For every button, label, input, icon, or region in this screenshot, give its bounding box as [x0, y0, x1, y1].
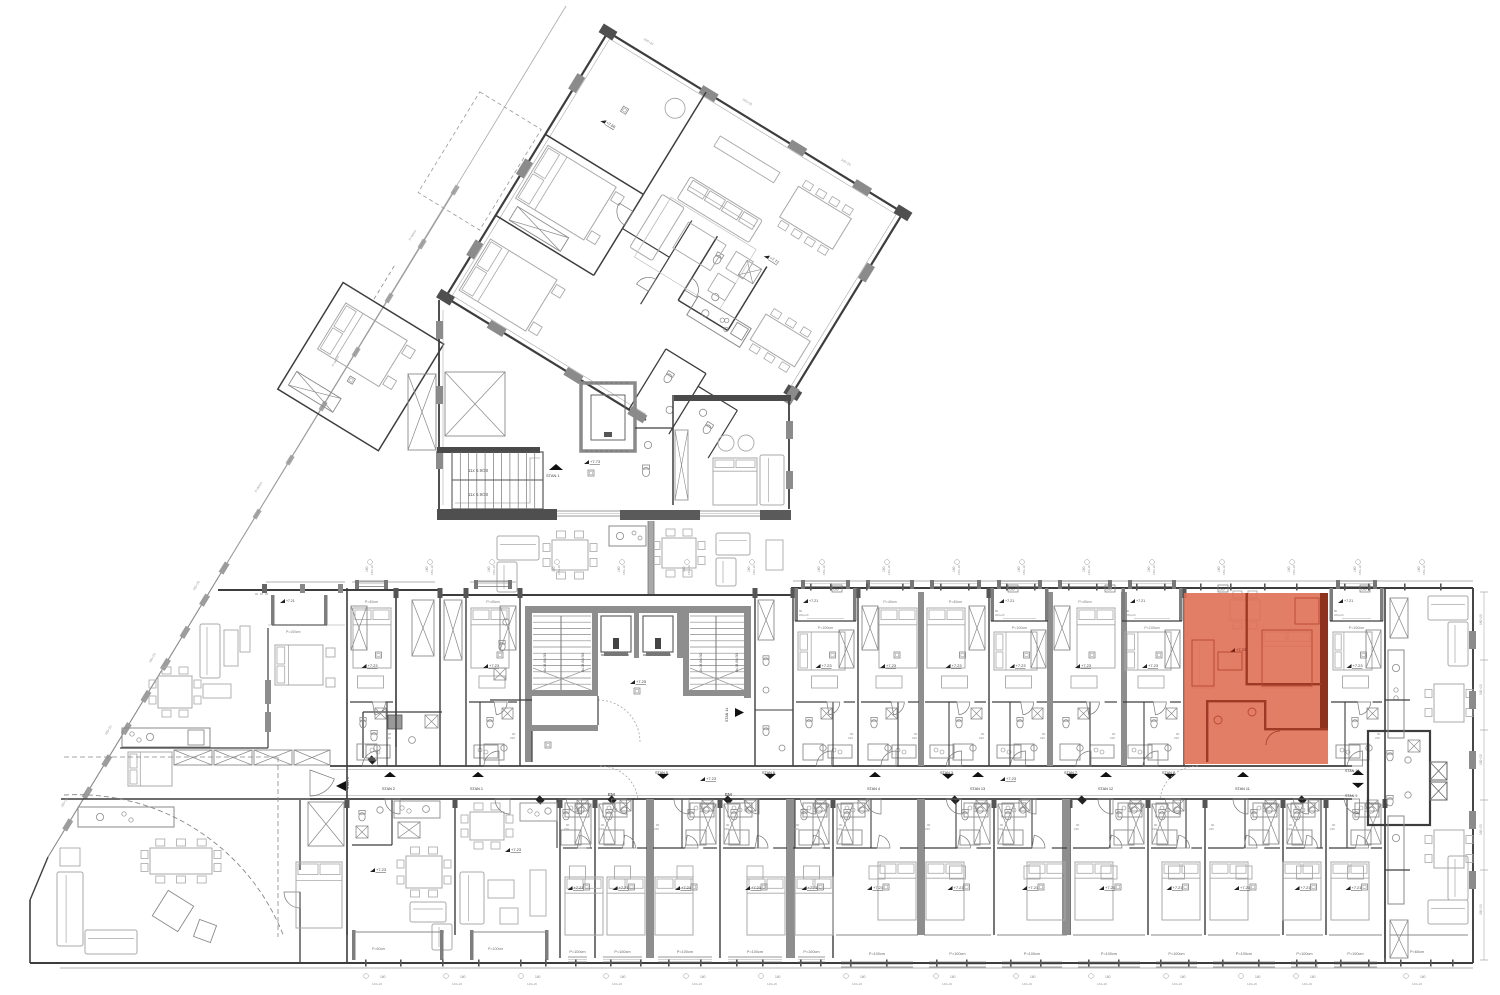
svg-text:+7.21: +7.21	[751, 885, 762, 890]
svg-text:+7.21: +7.21	[286, 599, 295, 603]
svg-text:+7.23: +7.23	[952, 663, 963, 668]
svg-text:140+20: 140+20	[527, 982, 537, 986]
svg-text:160: 160	[1147, 566, 1151, 572]
svg-text:+7.23: +7.23	[376, 867, 387, 872]
svg-text:+7.21: +7.21	[954, 885, 965, 890]
svg-text:DG: DG	[1010, 588, 1015, 592]
svg-text:180+20: 180+20	[557, 565, 561, 575]
svg-text:P=100cm: P=100cm	[1012, 626, 1027, 630]
svg-text:+7.23: +7.23	[886, 663, 897, 668]
svg-text:160: 160	[365, 566, 369, 572]
svg-text:9x18.66/30: 9x18.66/30	[581, 653, 585, 672]
svg-text:160: 160	[775, 975, 781, 979]
svg-text:EM: EM	[725, 792, 732, 797]
svg-text:220: 220	[1152, 827, 1157, 831]
svg-text:220: 220	[998, 827, 1003, 831]
svg-text:11x 5.9/30: 11x 5.9/30	[468, 468, 489, 473]
svg-text:220: 220	[912, 736, 917, 740]
svg-text:+7.23: +7.23	[1236, 647, 1247, 652]
svg-text:220: 220	[925, 827, 930, 831]
svg-text:140+20: 140+20	[692, 982, 702, 986]
svg-text:140+20: 140+20	[372, 982, 382, 986]
svg-text:220: 220	[510, 736, 515, 740]
svg-text:180+20: 180+20	[752, 565, 756, 575]
svg-text:140+20: 140+20	[1412, 982, 1422, 986]
svg-text:+7.21: +7.21	[619, 885, 630, 890]
svg-text:+7.21: +7.21	[1344, 599, 1353, 603]
svg-text:160: 160	[1217, 566, 1221, 572]
svg-text:P=100cm: P=100cm	[614, 950, 630, 954]
svg-text:140+20: 140+20	[1172, 982, 1182, 986]
svg-text:160: 160	[1310, 975, 1316, 979]
svg-text:180+20: 180+20	[1479, 754, 1483, 765]
svg-text:180+20: 180+20	[1222, 565, 1226, 575]
svg-text:160: 160	[860, 975, 866, 979]
svg-text:P=60cm: P=60cm	[372, 947, 385, 951]
svg-text:DG: DG	[834, 588, 839, 592]
svg-text:P=40cm: P=40cm	[486, 600, 499, 604]
svg-text:P=100cm: P=100cm	[1168, 952, 1184, 956]
svg-text:+7.21: +7.21	[809, 599, 818, 603]
svg-text:220: 220	[979, 736, 984, 740]
svg-text:220: 220	[564, 827, 569, 831]
svg-text:STAN 8: STAN 8	[1162, 771, 1175, 775]
svg-text:STAN 4: STAN 4	[867, 787, 880, 791]
svg-text:160: 160	[747, 566, 751, 572]
svg-text:220: 220	[1375, 736, 1380, 740]
svg-text:P=40cm: P=40cm	[1078, 600, 1091, 604]
svg-text:180+20: 180+20	[1152, 565, 1156, 575]
svg-text:P=100cm: P=100cm	[1101, 952, 1117, 956]
svg-text:140+20: 140+20	[942, 982, 952, 986]
svg-text:220+20: 220+20	[1126, 613, 1136, 617]
svg-text:+7.21: +7.21	[1005, 599, 1014, 603]
svg-text:140+20: 140+20	[1022, 982, 1032, 986]
svg-text:P=40cm: P=40cm	[949, 600, 962, 604]
svg-text:9x18.66/30: 9x18.66/30	[735, 653, 739, 672]
svg-text:P=100cm: P=100cm	[488, 947, 503, 951]
svg-text:+7.23: +7.23	[489, 663, 500, 668]
svg-text:220+20: 220+20	[995, 613, 1005, 617]
svg-text:+7.25: +7.25	[636, 679, 647, 684]
svg-text:DG: DG	[1362, 588, 1367, 592]
svg-text:220: 220	[1209, 827, 1214, 831]
svg-text:160: 160	[1287, 566, 1291, 572]
svg-text:180+20: 180+20	[1087, 565, 1091, 575]
svg-text:+7.21: +7.21	[808, 885, 819, 890]
svg-text:+7.23: +7.23	[1081, 663, 1092, 668]
svg-text:220: 220	[724, 827, 729, 831]
svg-text:180+20: 180+20	[1358, 565, 1362, 575]
svg-text:P=100cm: P=100cm	[569, 950, 585, 954]
svg-text:140+20: 140+20	[767, 982, 777, 986]
svg-text:+7.23: +7.23	[368, 663, 379, 668]
svg-text:P=60cm: P=60cm	[1410, 950, 1424, 954]
svg-text:220: 220	[1074, 827, 1079, 831]
svg-text:P=100cm: P=100cm	[1296, 952, 1312, 956]
svg-text:P=100cm: P=100cm	[949, 952, 965, 956]
svg-text:STAN 3: STAN 3	[940, 771, 953, 775]
svg-text:P=100cm: P=100cm	[1024, 952, 1040, 956]
svg-text:180+20: 180+20	[622, 565, 626, 575]
svg-text:STAN 9: STAN 9	[1345, 794, 1357, 798]
svg-text:+7.21: +7.21	[1105, 885, 1116, 890]
svg-text:STAN 10: STAN 10	[1345, 769, 1359, 773]
svg-text:STAN 14: STAN 14	[725, 708, 729, 722]
svg-text:180+20: 180+20	[1479, 904, 1483, 915]
svg-text:STAN 12: STAN 12	[1098, 787, 1113, 791]
svg-text:P=100cm: P=100cm	[1236, 952, 1252, 956]
svg-text:180+20: 180+20	[1292, 565, 1296, 575]
svg-text:180+20: 180+20	[822, 565, 826, 575]
svg-text:160: 160	[487, 566, 491, 572]
svg-text:STAN 7: STAN 7	[1064, 771, 1077, 775]
svg-text:9x18.66/30: 9x18.66/30	[699, 653, 703, 672]
svg-text:+7.23: +7.23	[511, 847, 522, 852]
svg-text:180+20: 180+20	[1422, 565, 1426, 575]
svg-text:180+20: 180+20	[887, 565, 891, 575]
svg-text:180+20: 180+20	[1022, 565, 1026, 575]
svg-text:+7.23: +7.23	[1016, 663, 1027, 668]
svg-text:+7.21: +7.21	[1301, 885, 1312, 890]
svg-text:160: 160	[460, 975, 466, 979]
svg-text:140+20: 140+20	[1097, 982, 1107, 986]
svg-text:180+20: 180+20	[430, 565, 434, 575]
svg-text:+7.23: +7.23	[822, 663, 833, 668]
svg-text:P=100cm: P=100cm	[1349, 626, 1364, 630]
svg-text:P=100cm: P=100cm	[1144, 626, 1159, 630]
svg-text:220: 220	[1040, 736, 1045, 740]
svg-text:+7.21: +7.21	[1240, 885, 1251, 890]
svg-text:220: 220	[794, 827, 799, 831]
svg-text:220: 220	[1110, 736, 1115, 740]
svg-text:220: 220	[1330, 827, 1335, 831]
svg-text:160: 160	[1417, 566, 1421, 572]
svg-text:+7.23: +7.23	[1353, 663, 1364, 668]
svg-text:9x18.66/30: 9x18.66/30	[543, 653, 547, 672]
svg-text:STAN 6: STAN 6	[762, 771, 775, 775]
svg-text:160: 160	[950, 975, 956, 979]
svg-text:160: 160	[425, 566, 429, 572]
svg-text:160: 160	[552, 566, 556, 572]
svg-text:+7.23: +7.23	[706, 776, 717, 781]
svg-text:160: 160	[1082, 566, 1086, 572]
svg-text:140+20: 140+20	[1302, 982, 1312, 986]
svg-text:11x 5.9/30: 11x 5.9/30	[468, 492, 489, 497]
svg-text:STAN 5: STAN 5	[655, 771, 668, 775]
svg-text:P=100cm: P=100cm	[818, 626, 833, 630]
svg-text:220: 220	[654, 827, 659, 831]
svg-text:STAN 2: STAN 2	[382, 787, 395, 791]
svg-text:DG: DG	[1107, 588, 1112, 592]
svg-text:+7.23: +7.23	[1006, 776, 1017, 781]
svg-text:+7.21: +7.21	[1136, 599, 1145, 603]
svg-text:P=100cm: P=100cm	[803, 950, 819, 954]
svg-text:140+20: 140+20	[1247, 982, 1257, 986]
svg-text:+7.21: +7.21	[1028, 885, 1039, 890]
svg-text:P=100cm: P=100cm	[286, 630, 301, 634]
svg-text:160: 160	[1017, 566, 1021, 572]
svg-text:160: 160	[617, 566, 621, 572]
svg-text:+7.73: +7.73	[590, 459, 601, 464]
svg-text:220: 220	[1174, 736, 1179, 740]
svg-text:STAN 1: STAN 1	[546, 473, 560, 478]
svg-text:160: 160	[817, 566, 821, 572]
svg-text:160: 160	[952, 566, 956, 572]
svg-text:160: 160	[1420, 975, 1426, 979]
svg-text:140+20: 140+20	[452, 982, 462, 986]
svg-text:160: 160	[1353, 566, 1357, 572]
svg-text:180+20: 180+20	[492, 565, 496, 575]
svg-text:160: 160	[700, 975, 706, 979]
svg-text:160: 160	[1105, 975, 1111, 979]
svg-text:140+20: 140+20	[852, 982, 862, 986]
svg-text:180+20: 180+20	[957, 565, 961, 575]
svg-text:160: 160	[882, 566, 886, 572]
svg-text:220: 220	[848, 736, 853, 740]
svg-text:STAN 13: STAN 13	[970, 787, 985, 791]
svg-text:+7.21: +7.21	[873, 885, 884, 890]
svg-text:P=100cm: P=100cm	[677, 950, 693, 954]
svg-text:+7.21: +7.21	[574, 885, 585, 890]
svg-text:DG: DG	[1220, 588, 1225, 592]
svg-text:160: 160	[380, 975, 386, 979]
svg-text:160: 160	[620, 975, 626, 979]
svg-text:P=40cm: P=40cm	[365, 600, 378, 604]
svg-text:220+20: 220+20	[799, 613, 809, 617]
svg-text:P=100cm: P=100cm	[869, 952, 885, 956]
svg-text:220: 220	[599, 827, 604, 831]
svg-text:P=40cm: P=40cm	[883, 600, 896, 604]
svg-text:+7.23: +7.23	[1148, 663, 1159, 668]
svg-text:220+20: 220+20	[1334, 613, 1344, 617]
svg-text:STAN 1: STAN 1	[470, 787, 483, 791]
svg-text:220: 220	[1287, 827, 1292, 831]
svg-text:160: 160	[1030, 975, 1036, 979]
svg-text:180+20: 180+20	[1479, 684, 1483, 695]
svg-text:STAN 11: STAN 11	[1235, 787, 1250, 791]
svg-text:P=100cm: P=100cm	[1347, 952, 1363, 956]
svg-text:180+20: 180+20	[687, 565, 691, 575]
svg-text:160: 160	[535, 975, 541, 979]
svg-text:P=100cm: P=100cm	[747, 950, 763, 954]
svg-text:220: 220	[386, 736, 391, 740]
svg-text:180+20: 180+20	[370, 565, 374, 575]
svg-text:180+20: 180+20	[1479, 824, 1483, 835]
svg-text:160: 160	[1255, 975, 1261, 979]
svg-text:160: 160	[682, 566, 686, 572]
svg-text:180+20: 180+20	[1479, 614, 1483, 625]
svg-text:+7.21: +7.21	[681, 885, 692, 890]
svg-text:140+20: 140+20	[612, 982, 622, 986]
svg-text:220: 220	[837, 827, 842, 831]
svg-text:+7.21: +7.21	[1352, 885, 1363, 890]
svg-text:160: 160	[1180, 975, 1186, 979]
svg-text:+7.21: +7.21	[1173, 885, 1184, 890]
